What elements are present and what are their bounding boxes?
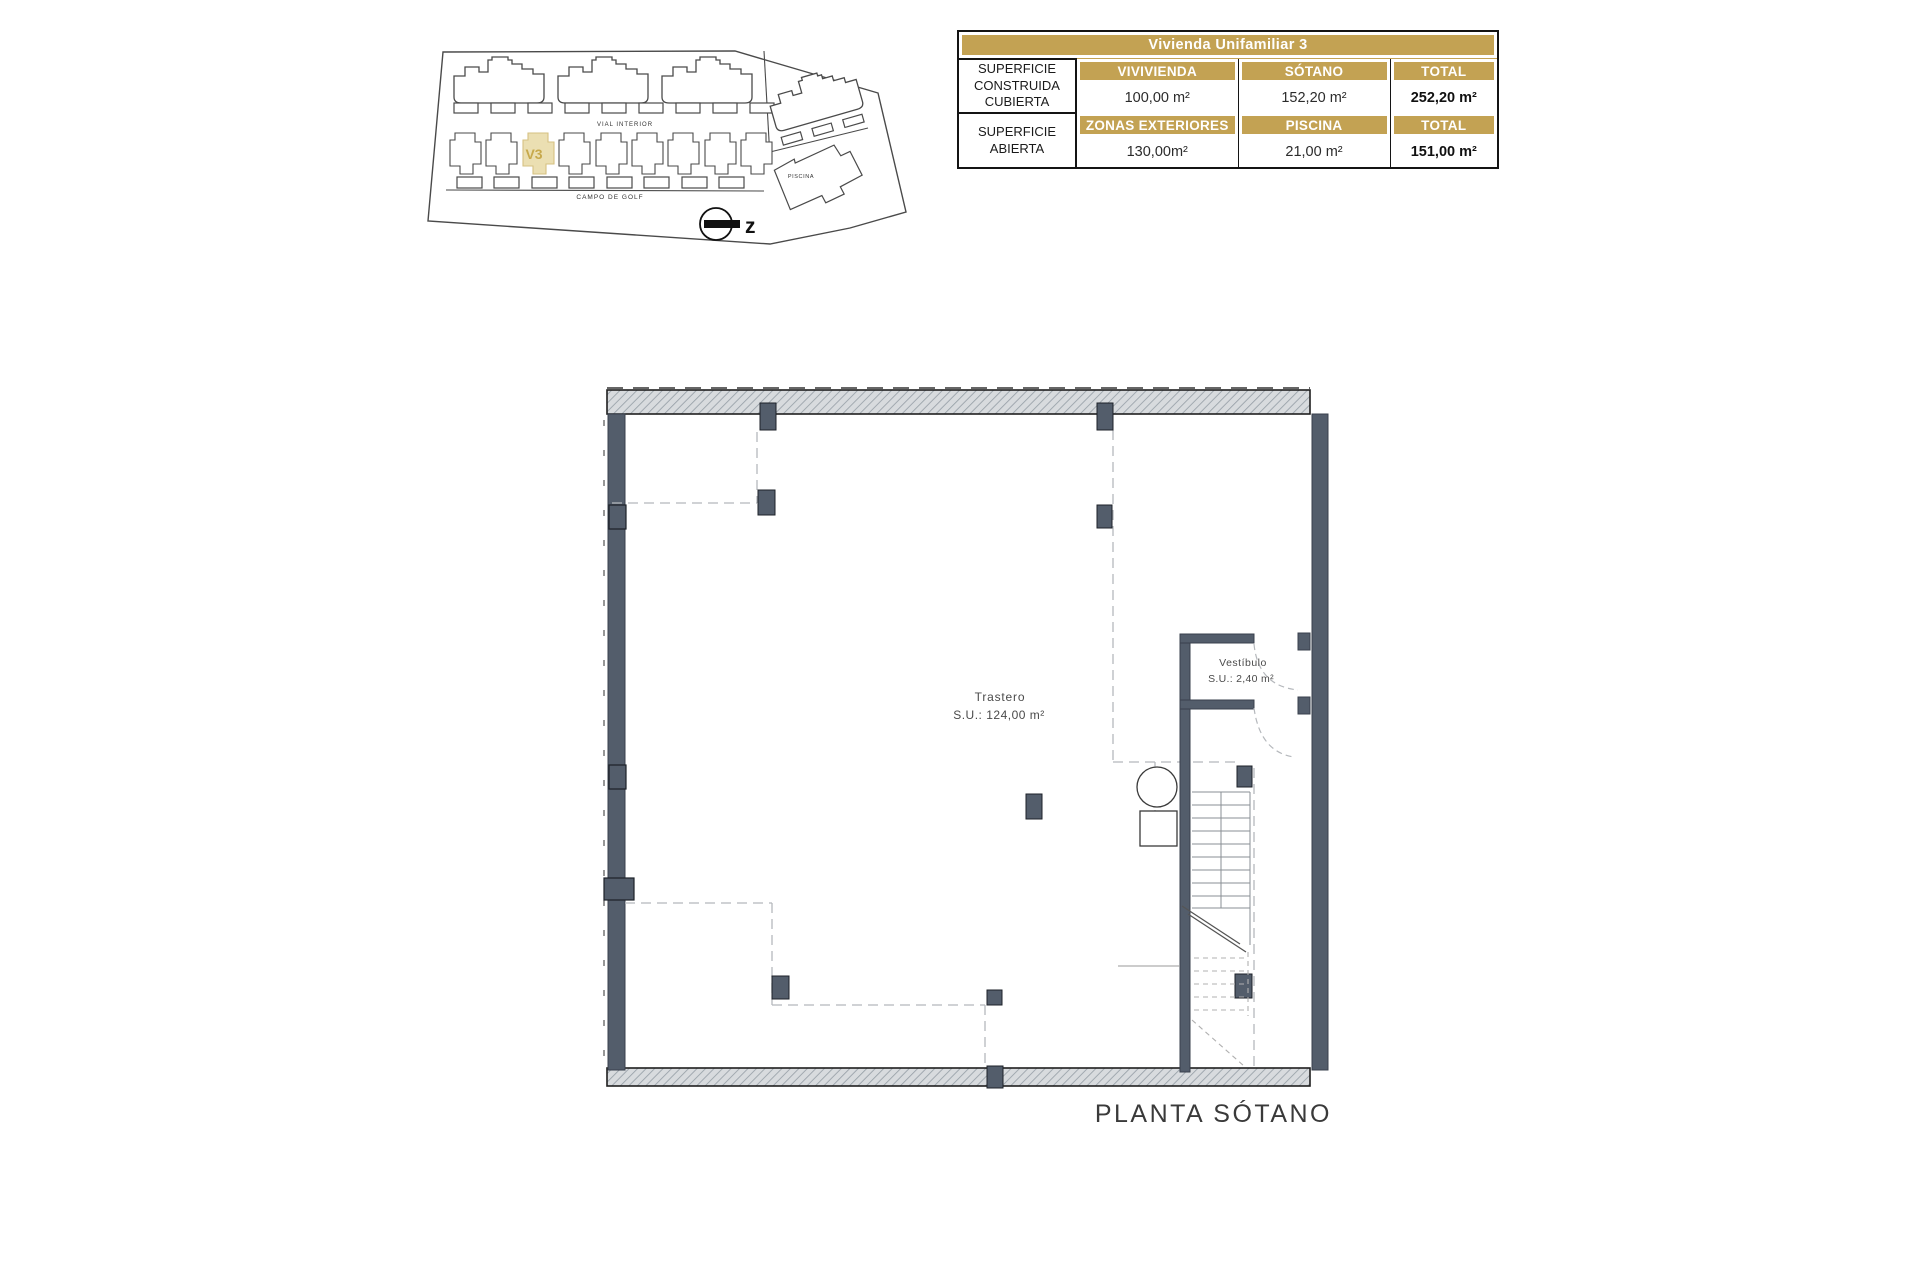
site-parking-bottom-row	[457, 177, 744, 188]
column	[1235, 974, 1252, 998]
wall-jamb	[609, 765, 626, 789]
room-area: S.U.: 124,00 m²	[953, 708, 1045, 722]
col-header-total-2: TOTAL	[1390, 113, 1498, 137]
site-houses-bottom-row	[450, 133, 772, 174]
basement-floor-plan: Trastero S.U.: 124,00 m² Vestíbulo S.U.:…	[590, 380, 1350, 1140]
site-location-plan: VIAL INTERIOR V3 CAMPO DE GOLF PISCINA	[425, 35, 915, 260]
site-angled-block	[765, 63, 868, 145]
value-total-construida: 252,20 m²	[1390, 83, 1498, 113]
room-name: Trastero	[975, 690, 1026, 704]
vestibule-walls	[1180, 633, 1310, 1072]
pool-label: PISCINA	[788, 174, 814, 180]
table-title: Vivienda Unifamiliar 3	[958, 31, 1498, 59]
wall-jamb	[609, 505, 626, 529]
wall-jamb	[604, 878, 634, 900]
stair-break-line	[1182, 906, 1246, 952]
value-piscina: 21,00 m²	[1238, 137, 1390, 168]
col-header-total-1: TOTAL	[1390, 59, 1498, 83]
golf-label: CAMPO DE GOLF	[576, 194, 643, 201]
site-houses-top-row	[454, 57, 752, 103]
column	[987, 990, 1002, 1005]
ceiling-outline-dashed	[612, 430, 1254, 1068]
col-header-zonas-exteriores: ZONAS EXTERIORES	[1076, 113, 1238, 137]
plan-caption: PLANTA SÓTANO	[1095, 1099, 1332, 1128]
column	[1026, 794, 1042, 819]
col-header-sotano: SÓTANO	[1238, 59, 1390, 83]
surface-summary-table: Vivienda Unifamiliar 3 SUPERFICIE CONSTR…	[957, 30, 1499, 169]
column	[760, 403, 776, 430]
column	[987, 1066, 1003, 1088]
site-pool-building	[772, 140, 867, 213]
room-name: Vestíbulo	[1219, 657, 1267, 669]
room-area: S.U.: 2,40 m²	[1208, 673, 1274, 685]
column	[1097, 403, 1113, 430]
road-label: VIAL INTERIOR	[597, 122, 653, 128]
value-total-abierta: 151,00 m²	[1390, 137, 1498, 168]
north-arrow-icon: z	[700, 208, 756, 240]
row-label-superficie-abierta: SUPERFICIE ABIERTA	[958, 113, 1076, 168]
column	[772, 976, 789, 999]
col-header-vivienda: VIVIVIENDA	[1076, 59, 1238, 83]
bottom-hatched-wall	[607, 1068, 1310, 1086]
row-label-superficie-construida: SUPERFICIE CONSTRUIDA CUBIERTA	[958, 59, 1076, 113]
value-vivienda: 100,00 m²	[1076, 83, 1238, 113]
round-fixture	[1137, 767, 1177, 807]
value-sotano: 152,20 m²	[1238, 83, 1390, 113]
column	[1237, 766, 1252, 787]
square-fixture	[1140, 811, 1177, 846]
stair-dashed-treads	[1192, 952, 1248, 1066]
right-wall	[1312, 414, 1328, 1070]
site-parking-top-row	[454, 103, 774, 113]
column	[1097, 505, 1112, 528]
col-header-piscina: PISCINA	[1238, 113, 1390, 137]
value-zonas-exteriores: 130,00m²	[1076, 137, 1238, 168]
svg-text:z: z	[745, 215, 756, 238]
staircase	[1182, 792, 1250, 1066]
site-inner-road-line	[446, 190, 764, 191]
column	[758, 490, 775, 515]
unit-label: V3	[525, 146, 542, 162]
top-hatched-wall	[607, 390, 1310, 414]
